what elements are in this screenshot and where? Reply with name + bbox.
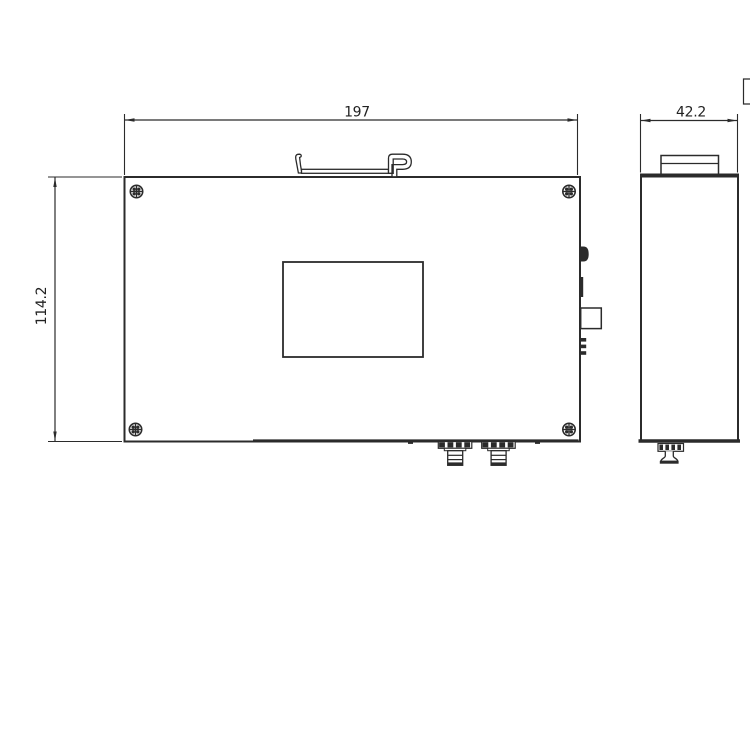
release-pin-icon — [658, 444, 684, 464]
side-view — [639, 156, 741, 464]
din-rail-bracket-icon — [661, 156, 719, 175]
dimensions: 197 114.2 42.2 — [34, 105, 738, 442]
front-body-outline — [125, 177, 581, 442]
phillips-screw-icon-bottom-left — [129, 423, 141, 435]
dimension-height-label: 114.2 — [34, 287, 50, 326]
side-body-outline — [641, 175, 738, 442]
front-view — [125, 154, 602, 465]
terminal-fins-icon — [580, 338, 586, 355]
bottom-tab-left — [408, 442, 413, 444]
fiber-connector-icon-left — [438, 442, 472, 466]
phillips-screw-icon-top-left — [130, 185, 142, 197]
clip-right-hook — [389, 154, 412, 177]
dimension-width-label: 197 — [344, 105, 370, 121]
square-connector-icon — [581, 308, 602, 329]
dimension-height: 114.2 — [34, 177, 122, 442]
dimension-depth: 42.2 — [641, 105, 738, 173]
drawing-canvas: 197 114.2 42.2 — [0, 0, 750, 750]
phillips-screw-icon-top-right — [563, 185, 575, 197]
phillips-screw-icon-bottom-right — [563, 423, 575, 435]
dimension-drawing: 197 114.2 42.2 — [0, 0, 750, 750]
right-edge-features — [580, 247, 601, 355]
bottom-tab-right — [535, 442, 540, 444]
corner-screws — [129, 185, 575, 435]
clip-bar — [302, 169, 389, 173]
label-window — [283, 262, 423, 357]
push-button-icon — [580, 247, 589, 262]
release-pin-stem — [661, 451, 678, 461]
dimension-depth-label: 42.2 — [676, 105, 706, 121]
slot-icon — [580, 277, 583, 297]
fiber-connector-icon-right — [482, 442, 516, 466]
din-rail-clip-icon — [296, 154, 412, 177]
cropped-frame-edge — [744, 79, 750, 104]
dimension-width: 197 — [125, 105, 578, 176]
